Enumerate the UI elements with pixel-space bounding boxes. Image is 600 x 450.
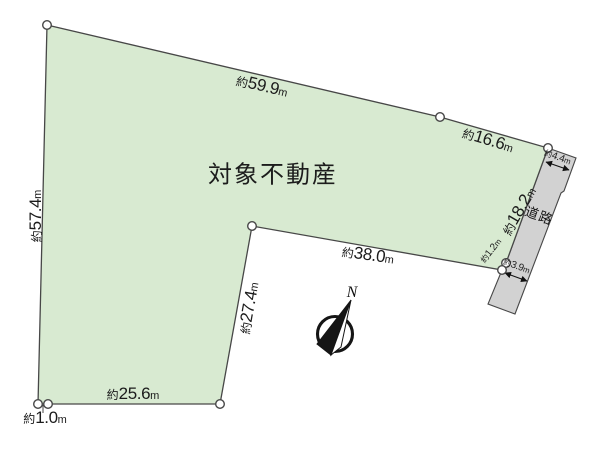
dim-unit: m (248, 281, 261, 292)
dim-prefix: 約 (23, 412, 35, 426)
dim-unit: m (384, 253, 395, 266)
dim-unit: m (150, 390, 159, 402)
compass-north-label: N (347, 284, 358, 302)
vertex-marker (44, 400, 53, 409)
compass-icon (317, 300, 353, 355)
vertex-marker (216, 400, 225, 409)
dim-prefix: 約 (107, 388, 119, 402)
dim-value: 1.0 (35, 408, 57, 427)
vertex-marker (43, 21, 52, 30)
dimension-bottom-edge: 約25.6m (107, 385, 160, 403)
dimension-left-edge: 約57.4m (27, 190, 45, 243)
dim-value: 57.4 (26, 199, 45, 231)
dim-unit: m (32, 190, 44, 199)
land-plot-diagram: 対象不動産 約59.9m 約16.6m 約57.4m 約18.2m 約4.4m … (0, 0, 600, 450)
land-polygon (38, 25, 548, 404)
dimension-bottom-left-jog: 約1.0m (23, 409, 67, 427)
dim-unit: m (58, 414, 67, 426)
parcel-title: 対象不動産 (208, 155, 338, 190)
vertex-marker (34, 400, 43, 409)
vertex-marker (248, 222, 257, 231)
dim-prefix: 約 (30, 230, 44, 242)
vertex-marker (436, 113, 445, 122)
dim-value: 25.6 (119, 384, 151, 403)
